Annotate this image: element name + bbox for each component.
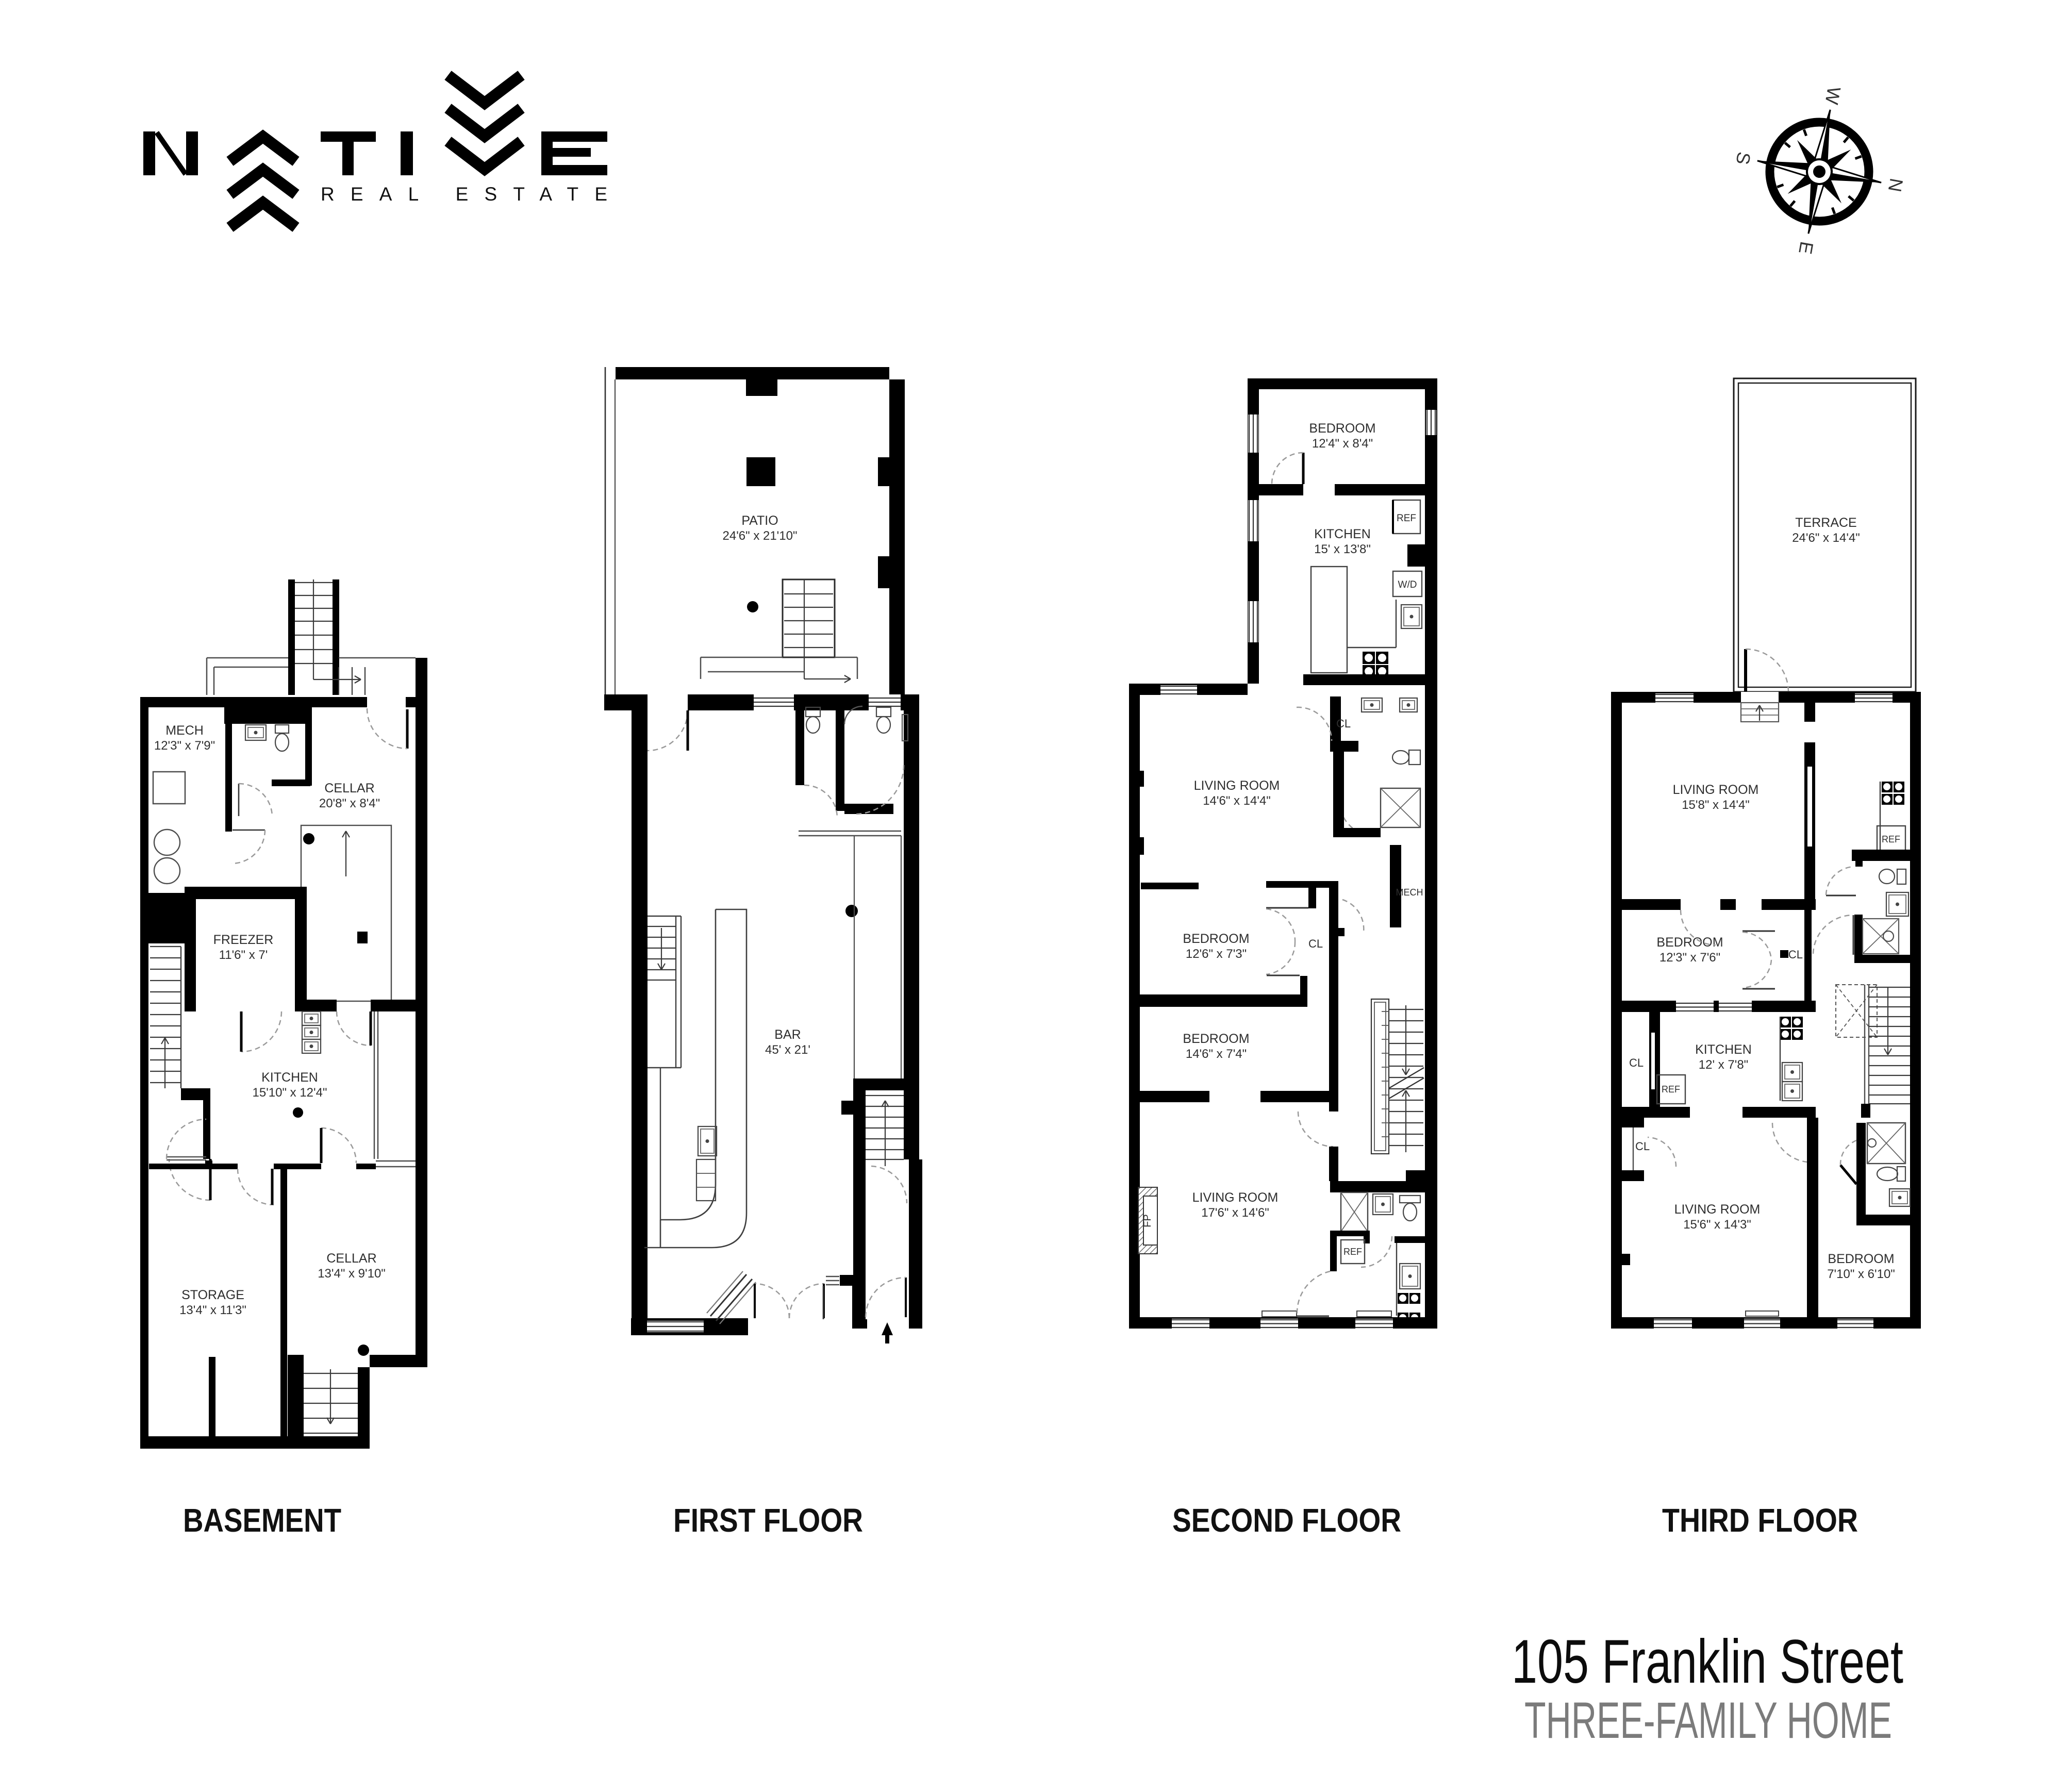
- svg-text:BASEMENT: BASEMENT: [183, 1502, 341, 1539]
- svg-text:LIVING ROOM: LIVING ROOM: [1194, 778, 1280, 793]
- svg-text:BEDROOM: BEDROOM: [1656, 935, 1723, 950]
- svg-text:15'6" x 14'3": 15'6" x 14'3": [1683, 1218, 1751, 1232]
- svg-text:KITCHEN: KITCHEN: [261, 1070, 318, 1085]
- svg-text:CELLAR: CELLAR: [326, 1251, 376, 1266]
- svg-text:SECOND FLOOR: SECOND FLOOR: [1172, 1502, 1401, 1539]
- svg-text:KITCHEN: KITCHEN: [1695, 1042, 1752, 1057]
- svg-text:CELLAR: CELLAR: [324, 781, 374, 795]
- svg-text:THREE-FAMILY HOME: THREE-FAMILY HOME: [1524, 1691, 1892, 1749]
- svg-text:W: W: [1821, 85, 1845, 106]
- svg-text:BAR: BAR: [774, 1027, 801, 1042]
- svg-text:MECH: MECH: [165, 723, 204, 738]
- svg-text:12' x 7'8": 12' x 7'8": [1699, 1058, 1748, 1072]
- svg-text:STORAGE: STORAGE: [181, 1288, 244, 1302]
- svg-text:14'6" x 7'4": 14'6" x 7'4": [1186, 1047, 1247, 1061]
- svg-text:KITCHEN: KITCHEN: [1314, 527, 1371, 541]
- svg-text:12'6" x 7'3": 12'6" x 7'3": [1186, 947, 1247, 961]
- svg-text:THIRD FLOOR: THIRD FLOOR: [1662, 1502, 1858, 1539]
- svg-text:REF: REF: [1662, 1084, 1680, 1094]
- svg-text:TERRACE: TERRACE: [1795, 516, 1856, 530]
- svg-text:CL: CL: [1308, 937, 1323, 950]
- svg-text:W/D: W/D: [1398, 579, 1417, 590]
- svg-text:REF: REF: [1397, 513, 1416, 524]
- svg-text:15'10" x 12'4": 15'10" x 12'4": [253, 1086, 327, 1100]
- svg-text:24'6" x 14'4": 24'6" x 14'4": [1792, 531, 1860, 545]
- svg-text:CL: CL: [1788, 948, 1803, 961]
- svg-text:45' x 21': 45' x 21': [765, 1043, 810, 1057]
- svg-text:LIVING ROOM: LIVING ROOM: [1674, 1202, 1761, 1217]
- svg-text:CL: CL: [1336, 717, 1351, 730]
- svg-text:24'6" x 21'10": 24'6" x 21'10": [723, 529, 798, 543]
- svg-text:BEDROOM: BEDROOM: [1183, 932, 1249, 946]
- svg-text:FP: FP: [1142, 1214, 1153, 1227]
- svg-text:FREEZER: FREEZER: [213, 933, 274, 947]
- svg-text:LIVING ROOM: LIVING ROOM: [1192, 1190, 1279, 1205]
- svg-text:MECH: MECH: [1396, 887, 1423, 898]
- svg-text:12'3" x 7'6": 12'3" x 7'6": [1659, 951, 1720, 965]
- svg-text:15' x 13'8": 15' x 13'8": [1314, 542, 1371, 556]
- svg-text:FIRST FLOOR: FIRST FLOOR: [673, 1502, 863, 1539]
- svg-text:REF: REF: [1343, 1247, 1362, 1257]
- svg-text:12'4" x 8'4": 12'4" x 8'4": [1312, 437, 1373, 451]
- svg-text:13'4" x 9'10": 13'4" x 9'10": [318, 1267, 386, 1281]
- svg-text:20'8" x 8'4": 20'8" x 8'4": [319, 797, 380, 810]
- svg-text:CL: CL: [1635, 1140, 1650, 1153]
- svg-text:PATIO: PATIO: [741, 513, 778, 528]
- svg-text:LIVING ROOM: LIVING ROOM: [1673, 783, 1759, 797]
- svg-text:BEDROOM: BEDROOM: [1183, 1032, 1249, 1046]
- svg-text:BEDROOM: BEDROOM: [1828, 1252, 1894, 1266]
- svg-text:11'6" x 7': 11'6" x 7': [219, 948, 268, 962]
- svg-text:12'3" x 7'9": 12'3" x 7'9": [154, 739, 215, 753]
- svg-text:14'6" x 14'4": 14'6" x 14'4": [1203, 794, 1271, 808]
- svg-text:7'10" x 6'10": 7'10" x 6'10": [1827, 1267, 1895, 1281]
- svg-text:15'8" x 14'4": 15'8" x 14'4": [1682, 798, 1750, 812]
- svg-text:BEDROOM: BEDROOM: [1309, 421, 1375, 436]
- svg-text:105 Franklin Street: 105 Franklin Street: [1512, 1627, 1903, 1696]
- svg-text:CL: CL: [1629, 1056, 1644, 1069]
- svg-text:13'4" x 11'3": 13'4" x 11'3": [179, 1303, 246, 1317]
- svg-text:17'6" x 14'6": 17'6" x 14'6": [1201, 1206, 1269, 1220]
- svg-text:REF: REF: [1882, 834, 1900, 844]
